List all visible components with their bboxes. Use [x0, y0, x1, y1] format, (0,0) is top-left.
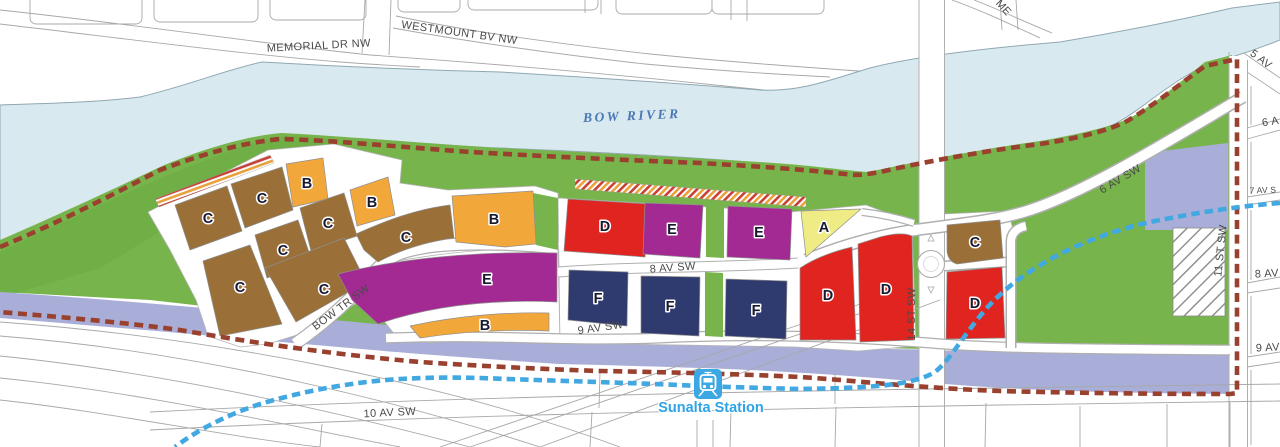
parcel-label-b4: B [480, 318, 490, 334]
parcel-label-c7: C [401, 230, 412, 246]
parcel-label-f1: F [594, 291, 603, 307]
parcel-label-b1: B [302, 176, 312, 192]
parcel-label-e2: E [667, 222, 677, 238]
parcel-label-c2: C [257, 191, 268, 207]
parcel-label-d4: D [970, 296, 980, 312]
parcel-label-f2: F [666, 299, 675, 315]
parcel-label-d1: D [600, 219, 610, 235]
parcel-label-c4: C [278, 243, 289, 259]
station-label: Sunalta Station [658, 400, 764, 416]
plan-map-canvas: MEMORIAL DR NW WESTMOUNT BV NW ME 5 AV 6… [0, 0, 1280, 447]
street-label-8av-partial: 8 AV [1255, 267, 1280, 280]
parcel-label-d3: D [881, 282, 891, 298]
parcel-label-b3: B [489, 212, 499, 228]
train-icon [694, 369, 722, 399]
parcel-label-b2: B [367, 195, 377, 211]
parcel-label-e1: E [482, 272, 492, 288]
street-label-14st: 14 ST SW [906, 287, 918, 340]
parcel-label-c5: C [235, 280, 246, 296]
plan-map: MEMORIAL DR NW WESTMOUNT BV NW ME 5 AV 6… [0, 0, 1280, 447]
street-label-9av-partial: 9 AV [1256, 341, 1280, 354]
parcel-label-c6: C [319, 282, 330, 298]
street-label-7av-partial: 7 AV S [1249, 185, 1276, 196]
parcel-label-c8: C [970, 235, 981, 251]
parcel-label-c3: C [323, 216, 334, 232]
street-label-6av-partial: 6 A [1261, 115, 1280, 129]
parcel-label-f3: F [752, 303, 761, 319]
parcel-label-e3: E [754, 225, 764, 241]
parcel-label-d2: D [823, 288, 833, 304]
parcel-label-a1: A [819, 220, 830, 236]
parcel-label-c1: C [203, 211, 214, 227]
